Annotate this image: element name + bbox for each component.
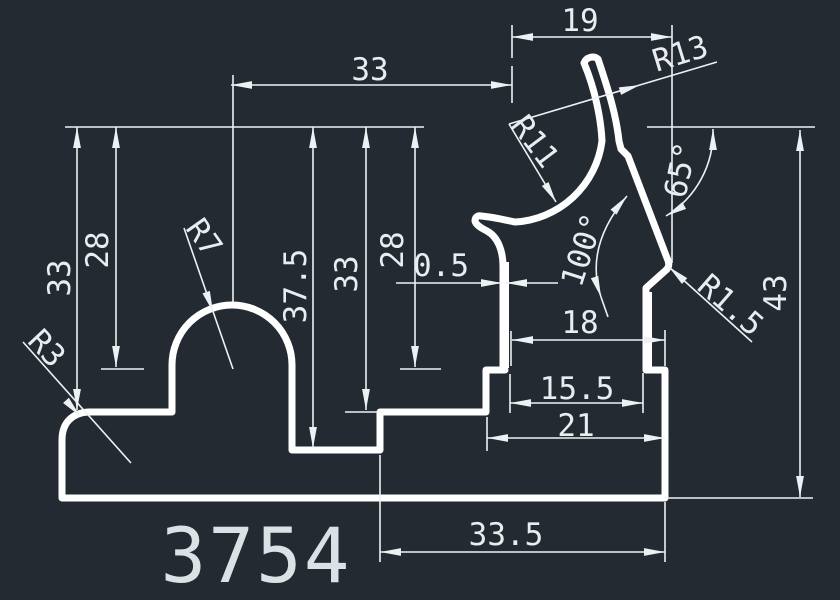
- dim-label-18: 18: [561, 305, 598, 341]
- dim-label-33-mid: 33: [329, 255, 365, 292]
- dim-label-15-5: 15.5: [540, 371, 615, 407]
- dim-label-33-5: 33.5: [469, 517, 544, 553]
- dim-label-0-5: 0.5: [413, 248, 469, 284]
- radius-label-r3: R3: [21, 323, 73, 375]
- angle-arc-100-tail: [601, 297, 608, 317]
- part-number: 3754: [160, 511, 351, 600]
- angle-label-65: 65°: [658, 139, 705, 201]
- dim-label-43: 43: [758, 274, 794, 311]
- angle-label-100: 100°: [554, 209, 611, 291]
- dim-label-33-top: 33: [351, 52, 388, 88]
- radius-label-r11: R11: [503, 109, 565, 175]
- dim-label-37-5: 37.5: [278, 249, 314, 324]
- radius-label-r7: R7: [178, 212, 229, 263]
- dim-label-28-mid: 28: [375, 231, 411, 268]
- dim-label-19: 19: [561, 3, 598, 39]
- cad-viewport: 33 28 37.5 33 28 43 33 19 0.5 18 15.5 21…: [0, 0, 840, 600]
- dim-label-28-left: 28: [80, 231, 116, 268]
- dim-label-21: 21: [557, 408, 594, 444]
- cad-canvas: 33 28 37.5 33 28 43 33 19 0.5 18 15.5 21…: [0, 0, 840, 600]
- dim-label-33-left: 33: [42, 259, 78, 296]
